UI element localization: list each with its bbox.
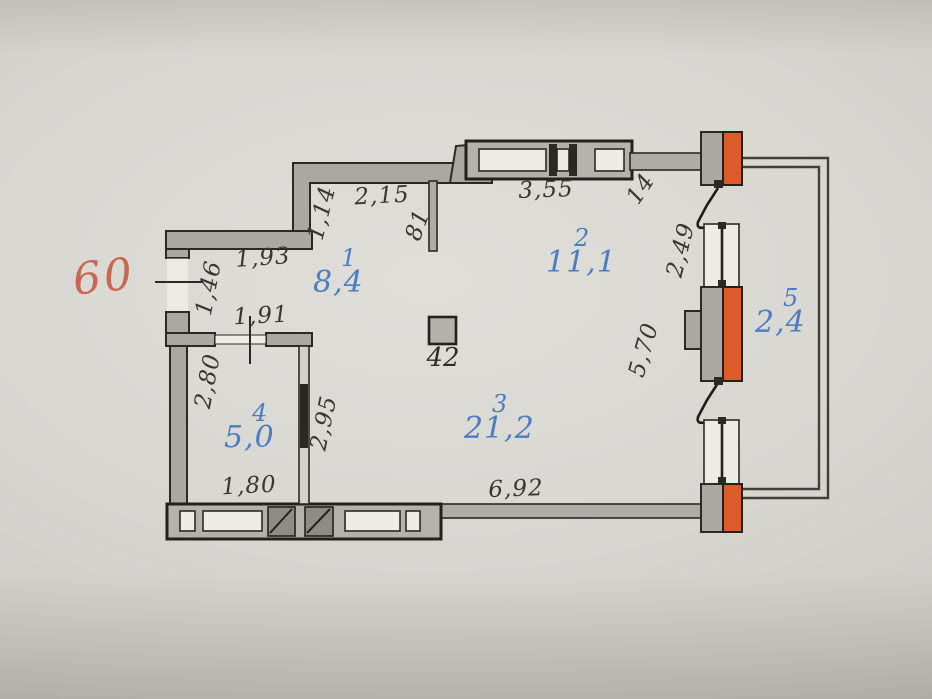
floor-plan-drawing [0,0,932,699]
room-2-label: 2 11,1 [546,226,617,278]
dim-3-55: 3,55 [518,176,574,204]
room-1-label: 1 8,4 [313,246,364,298]
dim-6-92: 6,92 [488,475,544,503]
bottom-window-wall [167,504,441,539]
dim-1-93: 1,93 [235,243,292,273]
floor-plan-photo: 60 1 8,4 2 11,1 3 21,2 4 5,0 5 2,4 42 1,… [0,0,932,699]
entrance-door-opening [167,258,188,312]
wall-block-bottom [701,484,723,532]
wall-block-top [701,132,723,185]
top-window [466,141,705,179]
room-1-area: 8,4 [313,268,364,298]
room-3-area: 21,2 [464,414,535,444]
room-5-area: 2,4 [755,308,806,338]
balcony-door-swing-top [698,188,718,228]
dim-1-80: 1,80 [221,472,278,501]
room-2-area: 11,1 [546,248,617,278]
room-5-label: 5 2,4 [755,286,806,338]
apartment-number-label: 60 [71,248,138,305]
dim-2-15: 2,15 [354,182,411,211]
room4-door-opening [215,335,266,344]
balcony-door-swing-bottom [698,383,718,423]
room-4-label: 4 5,0 [224,401,275,453]
dim-1-91: 1,91 [233,302,290,331]
insulation-top [723,132,742,185]
wall-block-middle [701,287,723,381]
utility-shaft [429,317,456,344]
room-4-area: 5,0 [224,423,275,453]
shaft-label: 42 [426,343,459,373]
right-wall [685,132,742,532]
insulation-bottom [723,484,742,532]
room-3-label: 3 21,2 [464,392,535,444]
insulation-middle [723,287,742,381]
